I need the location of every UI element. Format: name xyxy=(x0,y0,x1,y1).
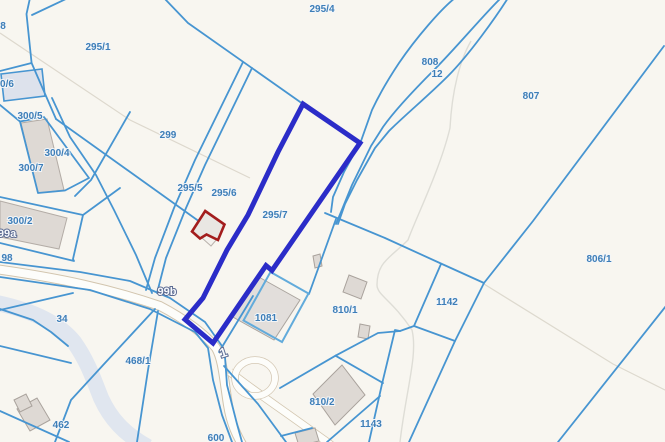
svg-text:295/4: 295/4 xyxy=(309,4,334,15)
svg-text:462: 462 xyxy=(53,420,70,431)
svg-text:1143: 1143 xyxy=(360,419,382,430)
svg-text:807: 807 xyxy=(523,91,540,102)
svg-text:300/4: 300/4 xyxy=(44,148,69,159)
svg-text:99a: 99a xyxy=(0,228,17,240)
svg-text:98: 98 xyxy=(1,253,13,264)
svg-text:295/1: 295/1 xyxy=(85,42,110,53)
svg-text:1081: 1081 xyxy=(255,313,278,324)
svg-text:300/2: 300/2 xyxy=(7,216,32,227)
svg-text:295/6: 295/6 xyxy=(211,188,236,199)
svg-text:99b: 99b xyxy=(158,286,177,298)
svg-text:295/7: 295/7 xyxy=(262,210,287,221)
svg-text:295/5: 295/5 xyxy=(177,183,202,194)
svg-text:12: 12 xyxy=(431,69,443,80)
svg-text:806/1: 806/1 xyxy=(586,254,611,265)
svg-text:468/1: 468/1 xyxy=(125,356,150,367)
svg-text:34: 34 xyxy=(56,314,68,325)
svg-text:300/5: 300/5 xyxy=(17,111,42,122)
svg-text:8: 8 xyxy=(0,21,6,32)
svg-text:808: 808 xyxy=(422,57,439,68)
svg-text:0/6: 0/6 xyxy=(0,79,14,90)
svg-text:299: 299 xyxy=(160,130,177,141)
svg-text:1142: 1142 xyxy=(436,297,458,308)
svg-text:600: 600 xyxy=(208,433,225,442)
svg-text:810/2: 810/2 xyxy=(309,397,334,408)
svg-text:300/7: 300/7 xyxy=(18,163,43,174)
svg-text:810/1: 810/1 xyxy=(332,305,357,316)
